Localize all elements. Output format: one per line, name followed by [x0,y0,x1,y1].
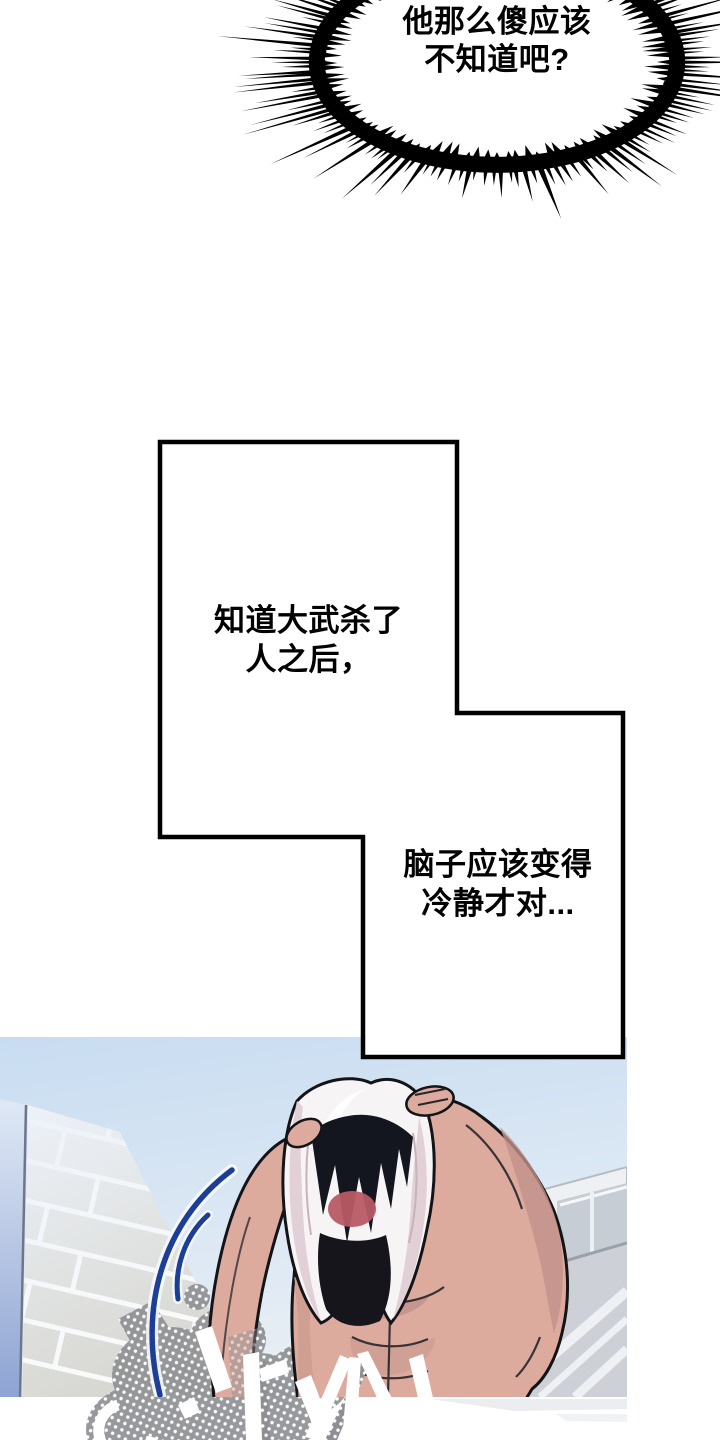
thought-text-second-line-1: 脑子应该变得 [370,845,626,884]
thought-text-first-line-1: 知道大武杀了 [160,601,457,640]
thought-text-first-line-2: 人之后， [160,640,457,679]
thought-text-first: 知道大武杀了 人之后， [160,601,457,679]
thought-text-second: 脑子应该变得 冷静才对... [370,845,626,923]
thought-panel-border [160,442,623,1057]
thought-text-second-line-2: 冷静才对... [370,884,626,923]
webtoon-page: 他那么傻应该 不知道吧? [0,0,720,1440]
thought-panel [0,0,720,1440]
